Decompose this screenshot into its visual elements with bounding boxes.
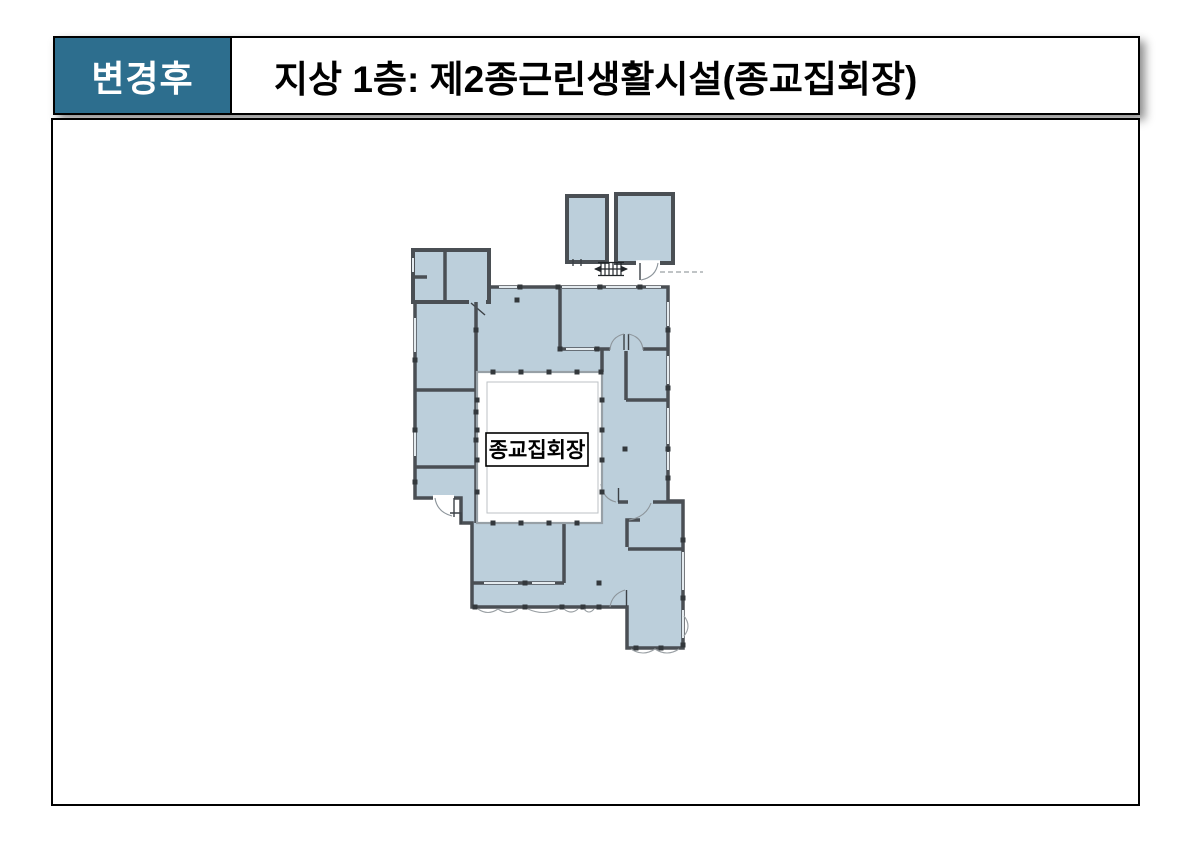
entrance-door — [433, 498, 461, 524]
change-after-badge: 변경후 — [55, 38, 232, 113]
detached-rooms — [567, 194, 673, 280]
detached-room-right — [616, 194, 673, 263]
slide-page: { "header": { "badge": "변경후", "title": "… — [0, 0, 1191, 842]
floor-title-text: 지상 1층: 제2종근린생활시설(종교집회장) — [274, 49, 917, 103]
badge-label: 변경후 — [91, 50, 193, 102]
floor-plan: 종교집회장 — [398, 186, 710, 666]
hall-label-box: 종교집회장 — [486, 433, 588, 466]
header-bar: 변경후 지상 1층: 제2종근린생활시설(종교집회장) — [53, 36, 1140, 115]
hall-label-text: 종교집회장 — [489, 439, 586, 462]
detached-room-left — [567, 196, 607, 262]
floor-title: 지상 1층: 제2종근린생활시설(종교집회장) — [232, 38, 1138, 113]
